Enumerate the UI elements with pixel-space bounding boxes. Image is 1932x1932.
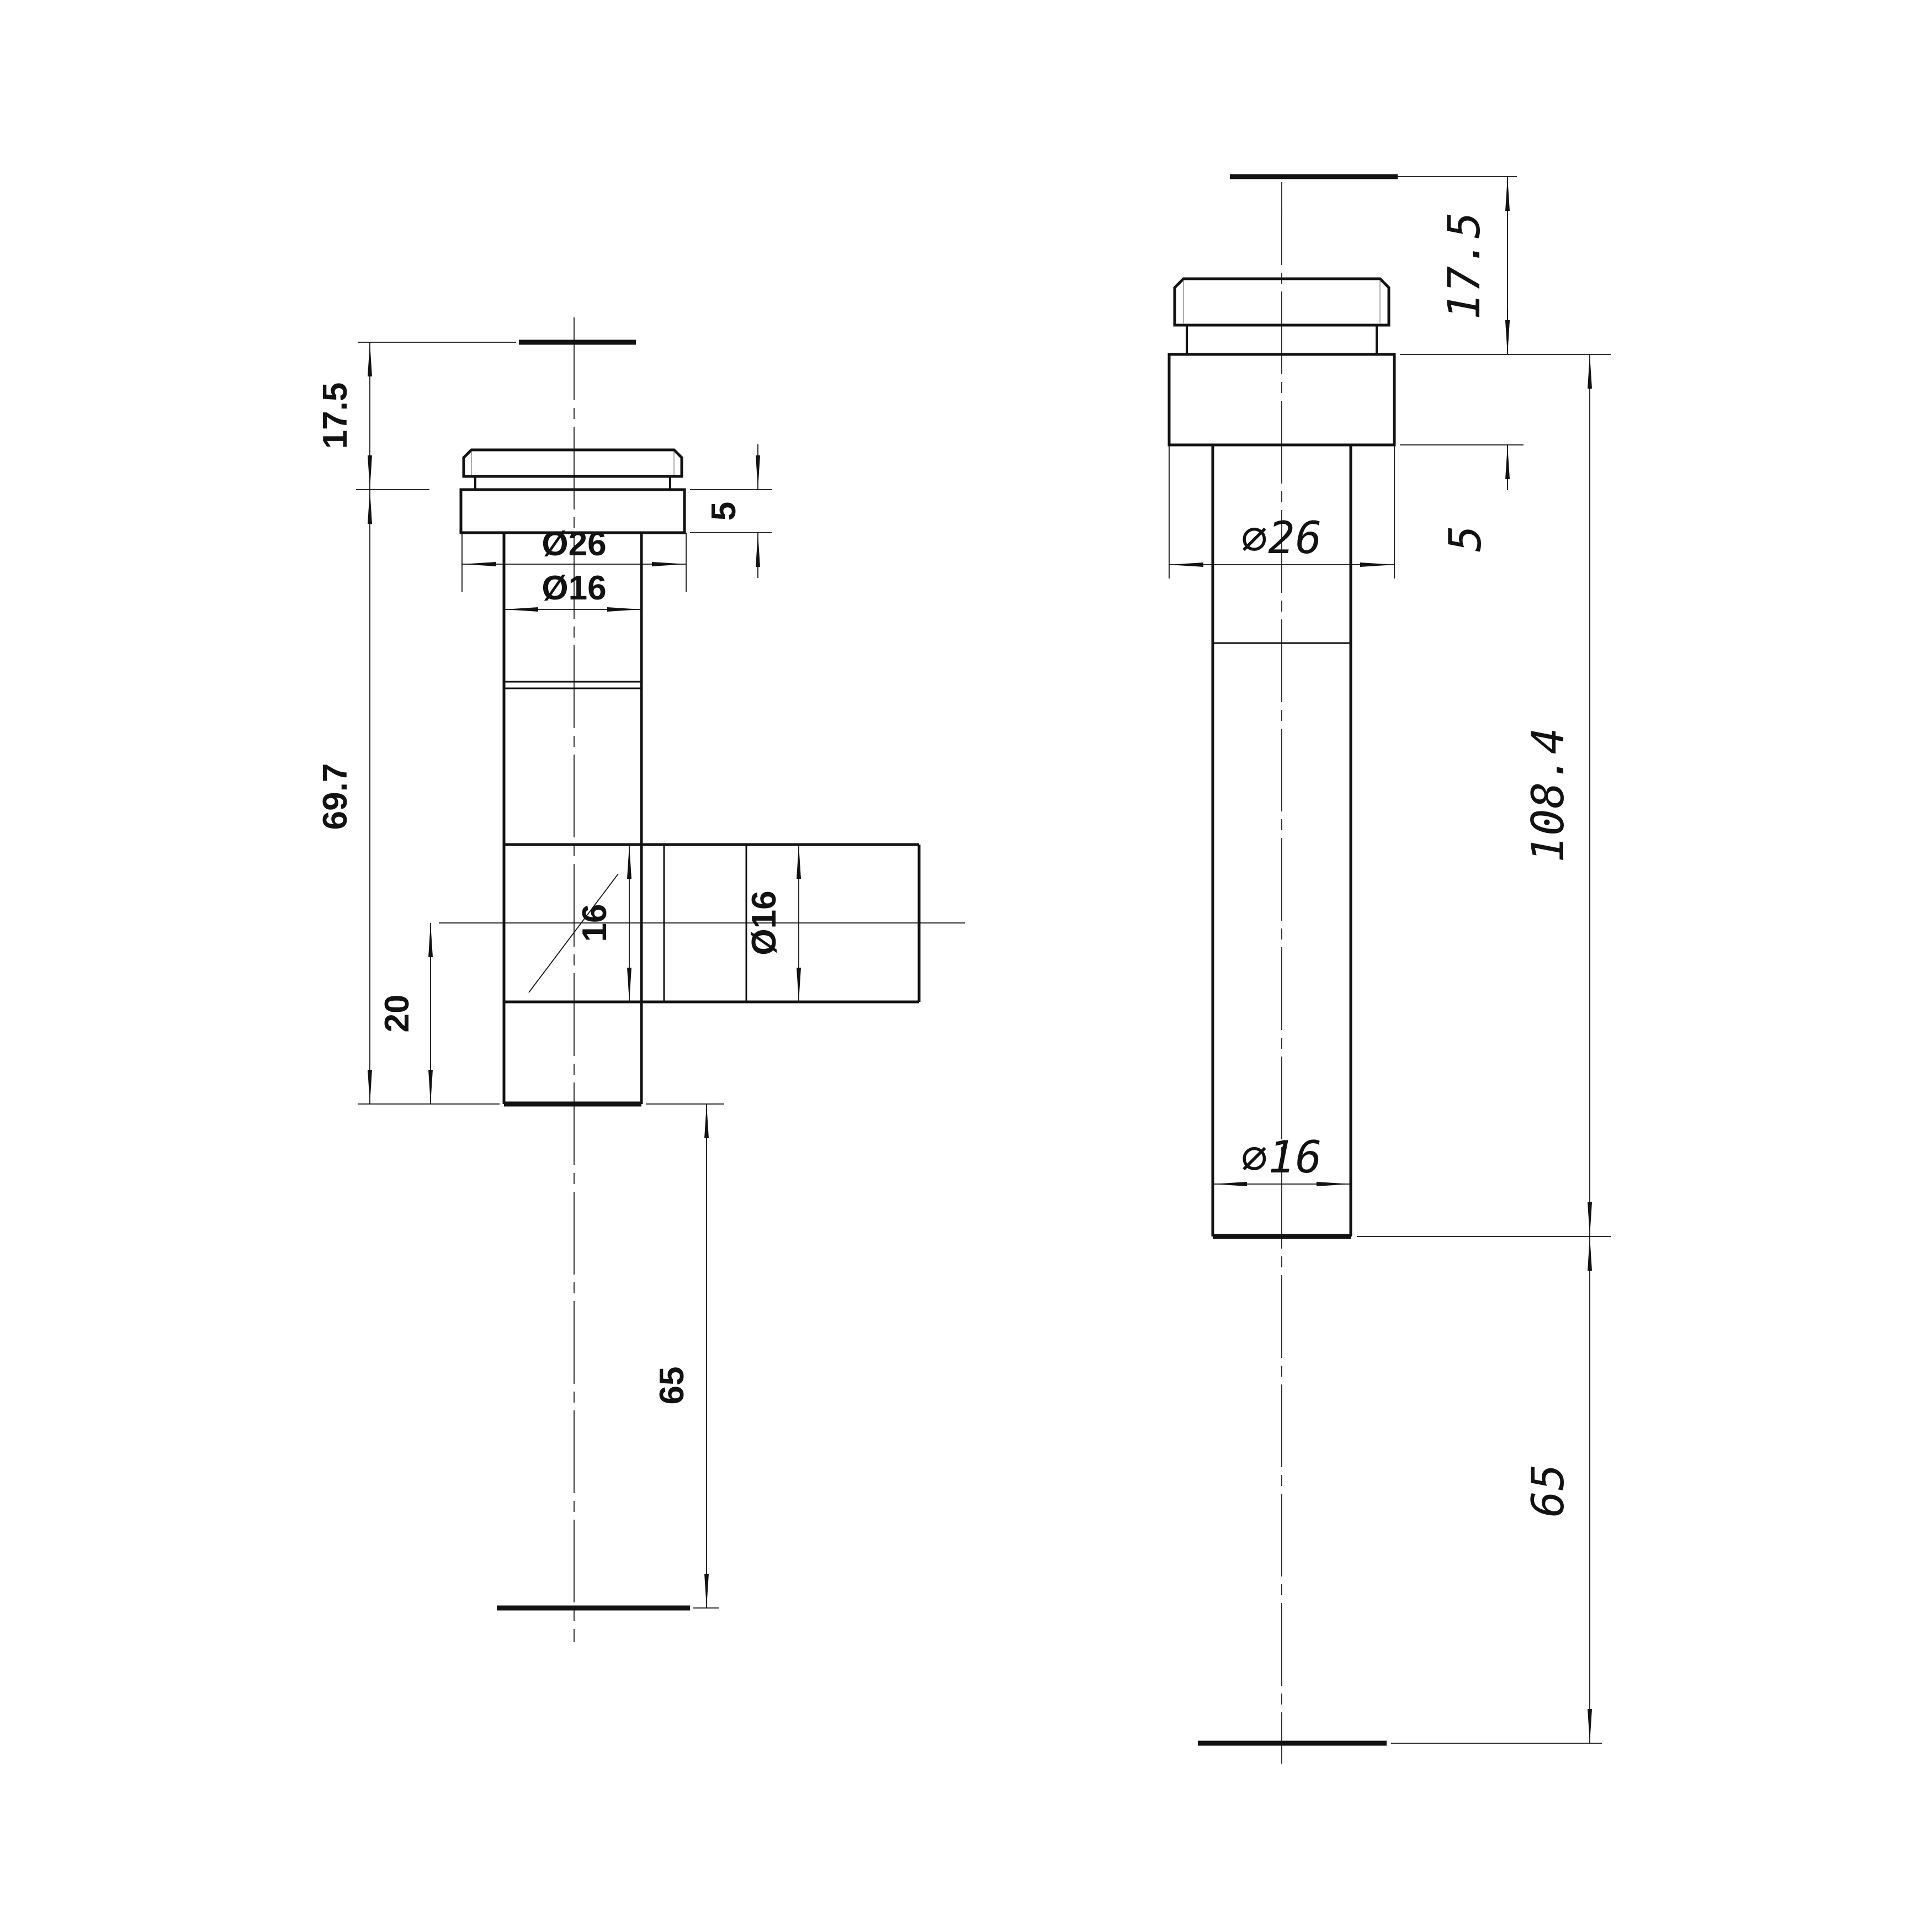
right-dim-lower-stub: 65 xyxy=(1522,1236,1590,1743)
left-dim-body-height: 69.7 xyxy=(316,490,370,1104)
left-dim-label-dia16-branch: Ø16 xyxy=(745,890,783,955)
left-view: 17.5 5 Ø26 Ø16 xyxy=(316,317,965,1642)
right-view: 17.5 5 ∅26 ∅16 108.4 xyxy=(1169,177,1611,1764)
left-branch-outlet xyxy=(439,845,965,1002)
left-dim-label-17-5: 17.5 xyxy=(316,383,354,449)
right-dim-label-17-5: 17.5 xyxy=(1439,211,1490,320)
right-dim-label-65: 65 xyxy=(1522,1463,1574,1517)
right-dim-label-dia26: ∅26 xyxy=(1241,512,1323,564)
left-dim-label-16: 16 xyxy=(576,904,614,942)
left-dim-upper-tube-diameter: Ø16 xyxy=(504,569,641,609)
right-dim-body-length: 108.4 xyxy=(1522,354,1590,1236)
left-dim-lower-stub: 65 xyxy=(653,1104,707,1608)
right-dim-tube-diameter: ∅16 xyxy=(1213,1132,1351,1184)
left-dim-cap-height: 17.5 xyxy=(316,342,370,490)
left-dim-flange-thickness: 5 xyxy=(705,444,758,578)
left-dim-label-dia26: Ø26 xyxy=(542,525,606,563)
technical-drawing-canvas: 17.5 5 Ø26 Ø16 xyxy=(0,0,1932,1932)
two-view-engineering-drawing: 17.5 5 Ø26 Ø16 xyxy=(0,0,1932,1932)
left-dim-label-dia16-upper: Ø16 xyxy=(542,569,606,607)
right-dim-label-5: 5 xyxy=(1440,524,1491,551)
right-dim-cap-height: 17.5 xyxy=(1439,177,1508,354)
left-dim-label-69-7: 69.7 xyxy=(316,763,354,830)
left-cap-outline xyxy=(464,450,682,476)
left-dim-label-20: 20 xyxy=(378,995,416,1033)
right-dim-label-108-4: 108.4 xyxy=(1522,727,1574,863)
left-dim-branch-offset: 20 xyxy=(378,923,431,1104)
left-dim-label-5: 5 xyxy=(705,502,743,521)
right-dim-label-dia16: ∅16 xyxy=(1241,1132,1323,1183)
right-dim-flange-thickness: 5 xyxy=(1440,309,1508,552)
left-dim-label-65: 65 xyxy=(653,1367,691,1405)
